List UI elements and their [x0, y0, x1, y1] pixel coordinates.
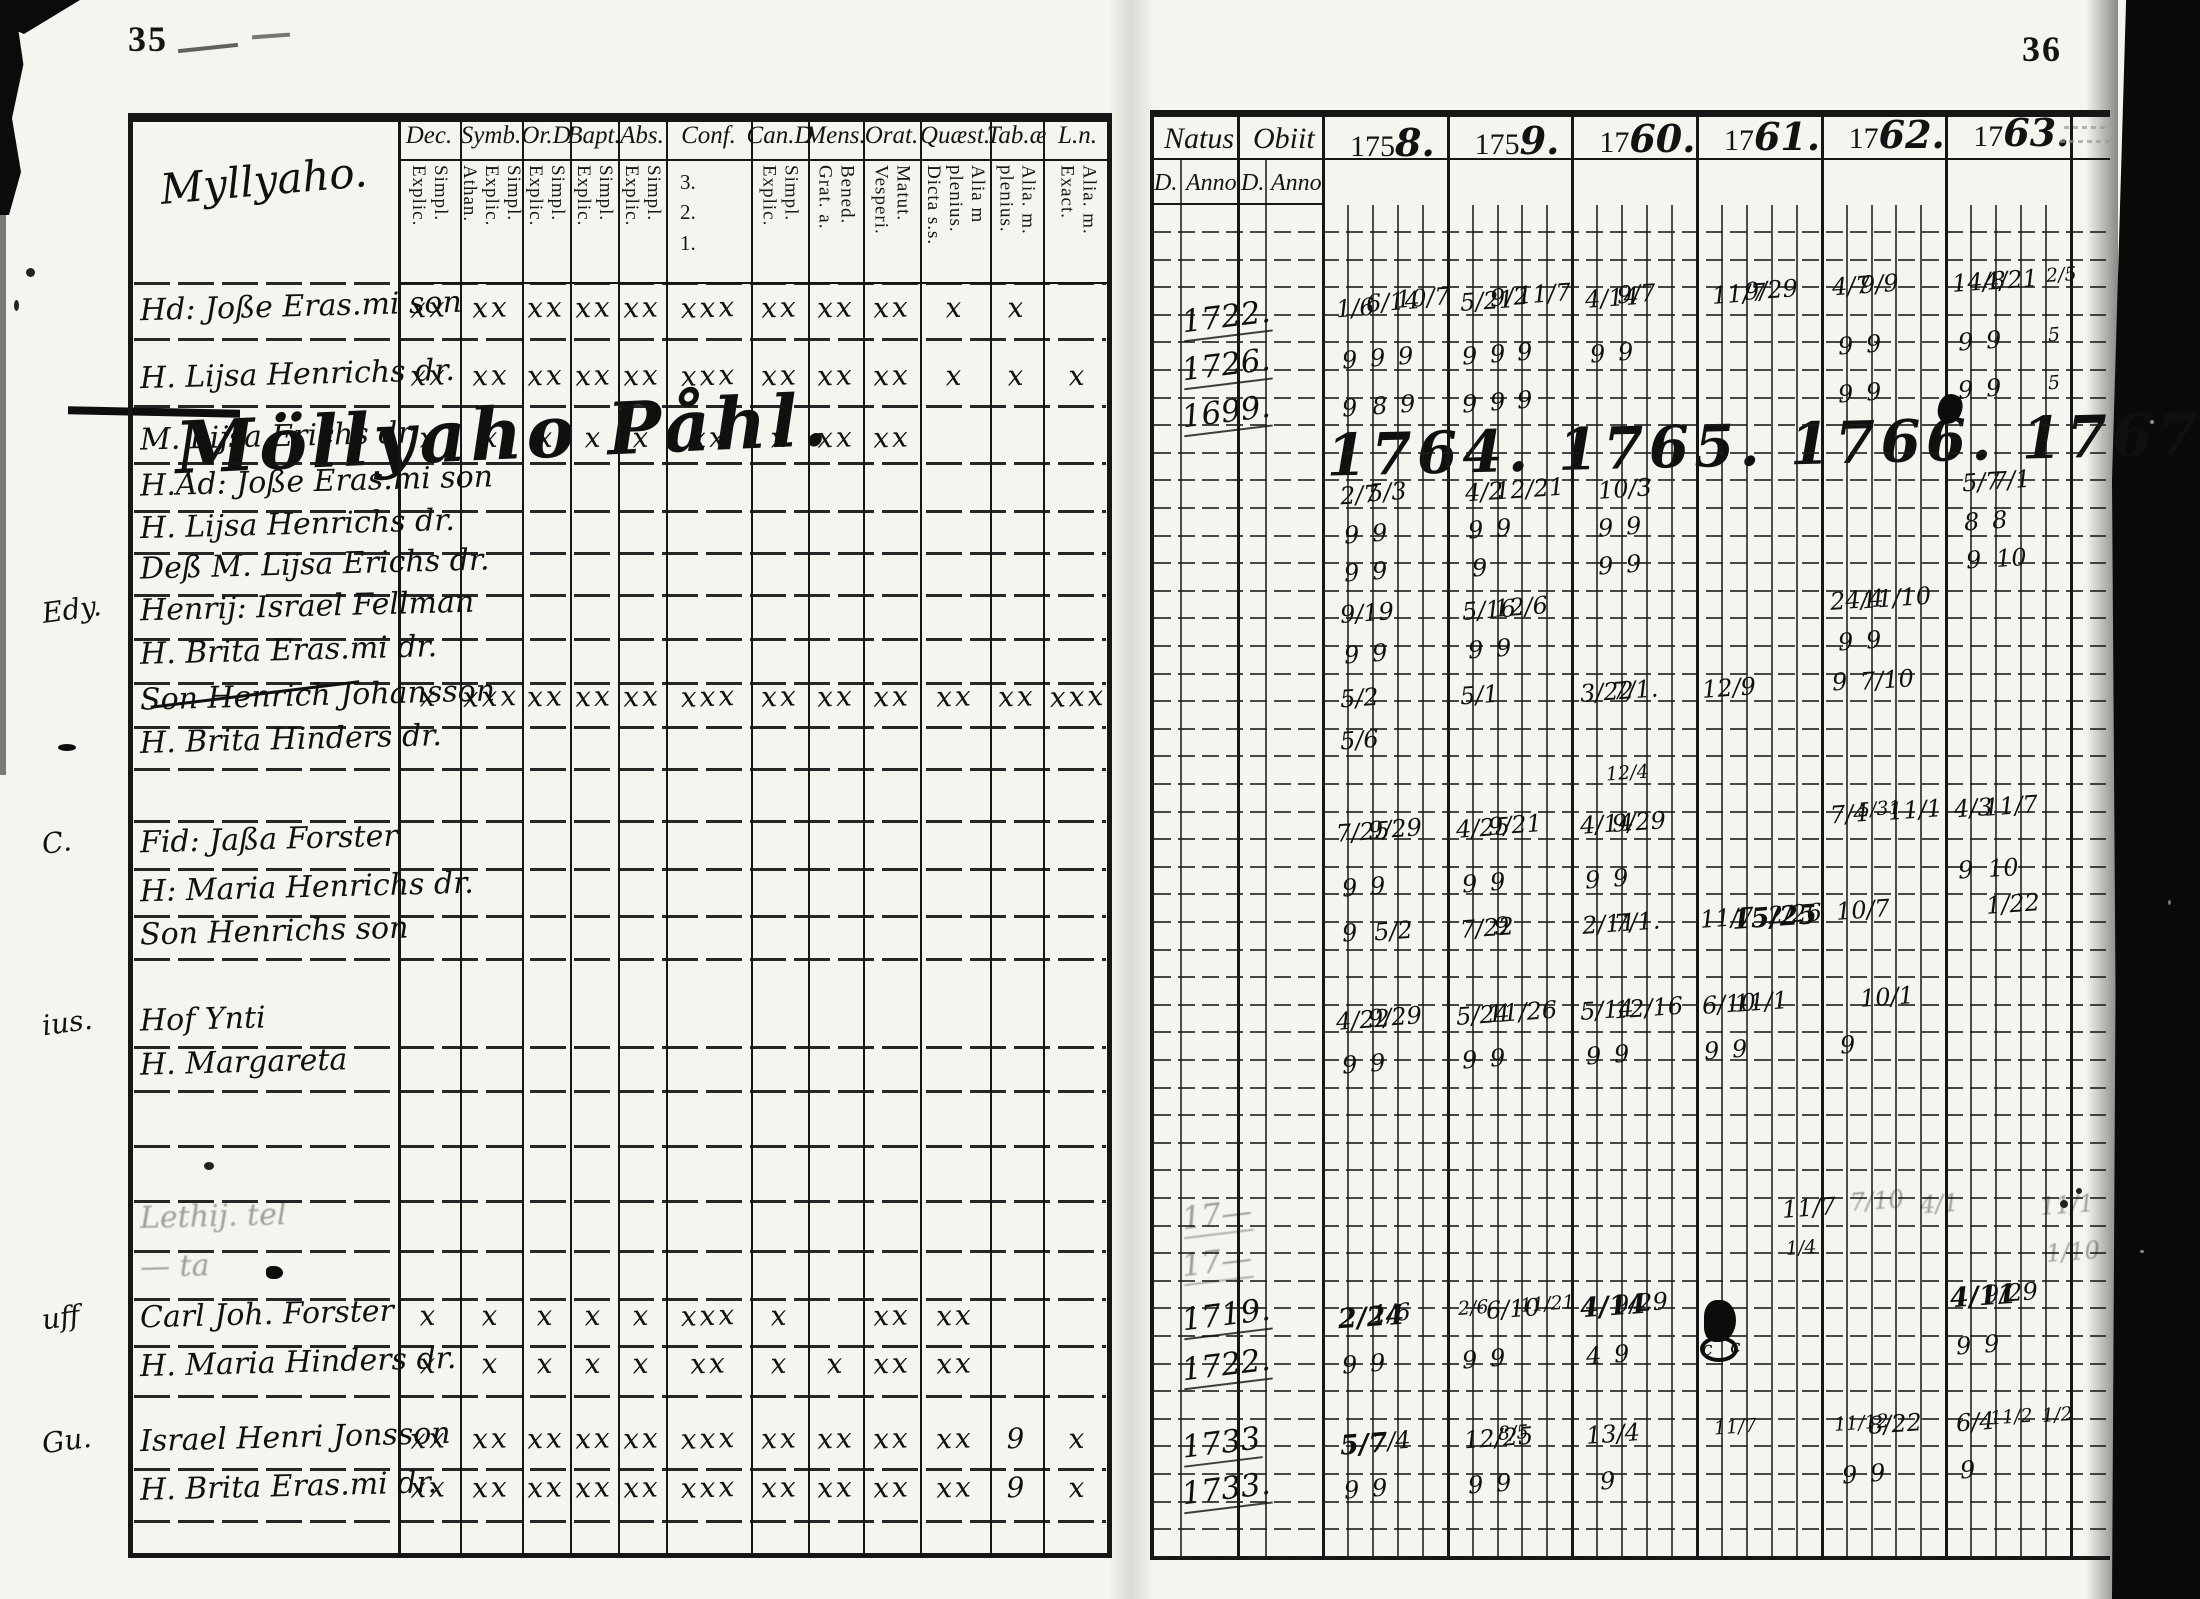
column-sub-label: Explic.: [525, 165, 545, 284]
year-printed-digits: 17: [1599, 126, 1629, 159]
cell-entry: 9: [1957, 329, 1974, 354]
row-line: [1154, 838, 2106, 840]
mark-cell: xx: [689, 423, 728, 452]
mark-cell: x: [770, 424, 790, 453]
cell-entry: 9: [1343, 642, 1360, 667]
column-sub-label: plenius.: [945, 165, 965, 284]
year-script-digits: 62.: [1879, 112, 1945, 157]
column-sub-labels: Explic.Simpl.: [398, 161, 460, 284]
cell-entry: 9/21: [1487, 811, 1542, 839]
cell-entry: 9: [1343, 560, 1360, 585]
mark-cell: xx: [816, 293, 855, 322]
cell-entry: 9: [1613, 1341, 1630, 1366]
cell-entry: 5/3: [1367, 479, 1407, 506]
name-column-divider: [398, 113, 401, 1557]
cell-entry: 11/1: [1733, 988, 1788, 1016]
subcolumn-line: [1871, 205, 1873, 1556]
register-row-name: Deß M. Lijsa Erichs dr.: [140, 545, 490, 584]
row-line: [1154, 369, 2106, 371]
column-sub-label: Simpl.: [547, 165, 567, 284]
mark-cell: xx: [872, 1473, 911, 1502]
natus-d-label: D.: [1154, 170, 1177, 197]
scanned-register-spread: 35 36 Myllyaho. Möllyaho Påhl. Dec.Expli…: [0, 0, 2200, 1599]
cell-entry: 9: [1369, 1350, 1386, 1375]
grid-vline: [522, 113, 524, 1557]
natus-anno-entry: 17—: [1180, 1196, 1254, 1239]
column-sub-label: plenius.: [996, 165, 1016, 284]
mark-cell: xx: [527, 361, 566, 390]
mark-cell: x: [419, 1302, 439, 1331]
faint-header-scribble: [2064, 126, 2108, 129]
year-script-digits: 60.: [1629, 116, 1695, 161]
cell-entry: 8: [1371, 393, 1388, 418]
cell-entry: 9: [1841, 1462, 1858, 1487]
column-header-qust: Quæst.Dicta s.s.plenius.Alia m: [920, 113, 990, 284]
grid-vline: [863, 113, 865, 1557]
cell-entry: 5: [2047, 326, 2060, 346]
cell-entry: 9: [1837, 333, 1854, 358]
left-table-header: Dec.Explic.Simpl.Symb.Athan.Explic.Simpl…: [128, 113, 1112, 284]
mark-cell: xxx: [680, 293, 737, 323]
cell-entry: 9/29: [1611, 808, 1666, 836]
mark-cell: xx: [760, 1424, 799, 1453]
mark-cell: xx: [410, 1424, 449, 1453]
cell-entry: 9: [1837, 629, 1854, 654]
cell-entry: 9/7: [1616, 281, 1656, 308]
danno-underline: [1150, 203, 1322, 205]
mark-cell: xx: [760, 361, 799, 390]
cell-entry: 9/19: [1339, 599, 1394, 627]
cell-entry: 2/26: [1767, 900, 1822, 928]
mark-cell: xx: [410, 293, 449, 322]
grid-vline: [460, 113, 462, 1557]
register-row-name: Carl Joh. Forster: [140, 1297, 395, 1334]
cell-entry: 9: [1461, 1347, 1478, 1372]
cell-entry: 9: [1731, 1036, 1748, 1061]
cell-entry: 13/4: [1585, 1420, 1640, 1448]
cell-entry: 8: [1963, 509, 1980, 534]
cell-entry: 7/1: [1991, 467, 2031, 494]
cell-entry: 11/7: [1781, 1194, 1836, 1222]
mark-cell: xx: [872, 423, 911, 452]
mark-cell: xx: [689, 1349, 728, 1378]
mark-cell: xx: [527, 293, 566, 322]
mark-cell: xx: [760, 293, 799, 322]
rule-line: [134, 1145, 1106, 1148]
cell-entry: 10/7: [1835, 896, 1890, 924]
cell-entry: 1/22: [1985, 890, 2040, 918]
column-sub-label: Exact.: [1057, 165, 1077, 284]
grid-vline: [808, 113, 810, 1557]
column-header-tab: Tab.æplenius.Alia. m.: [990, 113, 1043, 284]
row-line: [1154, 949, 2106, 951]
script-years-row: 1764. 1765. 1766. 1767. 1768. 1769.: [1325, 393, 2200, 484]
column-sub-label: Alia m: [967, 165, 987, 284]
column-sub-label: Simpl.: [503, 165, 523, 284]
mark-cell: xx: [760, 682, 799, 711]
cell-entry: 10: [1995, 545, 2027, 571]
cell-entry: 9: [1625, 513, 1642, 538]
register-row-name: H. Brita Hinders dr.: [140, 721, 442, 759]
row-line: [1154, 231, 2106, 233]
cell-entry: 9: [1489, 1045, 1506, 1070]
register-row-name: H.Ad: Joße Eras.mi son: [140, 462, 494, 501]
grid-vline: [751, 113, 753, 1557]
cell-entry: 1/4: [1785, 1238, 1817, 1259]
mark-cell: xx: [760, 1473, 799, 1502]
obiit-d-label: D.: [1241, 170, 1264, 197]
mark-cell: xx: [410, 361, 449, 390]
mark-cell: x: [632, 1350, 652, 1379]
cell-entry: 9: [1516, 387, 1533, 412]
cell-entry: 4: [1585, 1343, 1602, 1368]
cell-entry: 9: [1461, 391, 1478, 416]
cell-entry: 7/1.: [1613, 908, 1661, 935]
column-header-label: Bapt.: [570, 113, 618, 161]
year-divider: [1945, 110, 1948, 1556]
cell-entry: 9: [1589, 341, 1606, 366]
mark-cell: x: [584, 424, 604, 453]
row-line: [1154, 1142, 2106, 1144]
mark-cell: xx: [997, 682, 1036, 711]
column-header-label: Or.D: [522, 113, 570, 161]
margin-note: Gu.: [40, 1424, 93, 1459]
cell-entry: 12/9: [1701, 674, 1756, 702]
column-sub-labels: Explic.Simpl.: [570, 161, 618, 284]
subcolumn-line: [1920, 205, 1922, 1556]
cell-entry: 9: [1341, 1352, 1358, 1377]
column-sub-label: Simpl.: [643, 165, 663, 284]
register-row-name: H: Maria Henrichs dr.: [140, 869, 474, 908]
cell-entry: 9: [1371, 1475, 1388, 1500]
cell-entry: 9: [1397, 343, 1414, 368]
year-divider: [1447, 110, 1450, 1556]
cell-entry: 9: [1489, 341, 1506, 366]
mark-cell: xx: [872, 361, 911, 390]
grid-vline: [666, 113, 668, 1557]
column-header-bapt: Bapt.Explic.Simpl.: [570, 113, 618, 284]
cell-entry: 5/2: [1339, 685, 1379, 712]
cell-entry: 9: [1467, 1472, 1484, 1497]
ink-speck: [204, 1162, 214, 1170]
mark-cell: xx: [472, 1424, 511, 1453]
column-sub-labels: Exact.Alia. m.: [1043, 161, 1112, 284]
cell-entry: 11/7: [1516, 280, 1571, 308]
year-divider: [1696, 110, 1699, 1556]
year-header-1758: 1758.: [1350, 120, 1435, 165]
rule-line: [134, 1395, 1106, 1398]
table-border-left: [1150, 110, 1154, 1556]
subcolumn-line: [1397, 205, 1399, 1556]
cell-entry: 9: [1831, 669, 1848, 694]
grid-vline: [920, 113, 922, 1557]
column-header-orat: Orat.Vesperi.Matut.: [863, 113, 920, 284]
row-line: [1154, 1059, 2106, 1061]
cell-entry: 9: [1461, 343, 1478, 368]
margin-note: uff: [40, 1302, 81, 1335]
cell-entry: 4/21: [1983, 266, 2038, 294]
cell-entry: 9: [1865, 379, 1882, 404]
mark-cell: xx: [472, 293, 511, 322]
column-sub-labels: Athan.Explic.Simpl.: [460, 161, 522, 284]
mark-cell: xx: [816, 423, 855, 452]
cell-entry: 2/5: [2045, 265, 2077, 286]
cell-entry: 9: [1461, 871, 1478, 896]
column-header-ord: Or.DExplic.Simpl.: [522, 113, 570, 284]
mark-cell: 9: [1006, 1474, 1028, 1503]
column-header-label: Can.D: [751, 113, 808, 161]
cell-entry: 9: [1371, 520, 1388, 545]
cell-entry: 8: [1991, 507, 2008, 532]
row-line: [1154, 728, 2106, 730]
column-header-label: Mens.: [808, 113, 863, 161]
ink-blot: [266, 1266, 283, 1279]
mark-cell: xx: [623, 682, 662, 711]
cell-entry: 9: [1703, 1038, 1720, 1063]
mark-cell: xx: [816, 361, 855, 390]
cell-entry: 9: [1371, 558, 1388, 583]
year-divider: [1821, 110, 1824, 1556]
mark-cell: x: [536, 1350, 556, 1379]
cell-entry: 9: [1625, 551, 1642, 576]
natus-anno-entry: 1733.: [1180, 1469, 1272, 1515]
year-printed-digits: 17: [1724, 124, 1754, 157]
mark-cell: xx: [872, 1424, 911, 1453]
year-header-1763: 1763.: [1973, 110, 2069, 155]
row-line: [1154, 1169, 2106, 1171]
mark-cell: x: [584, 1302, 604, 1331]
column-sub-labels: 3.2.1.: [666, 161, 751, 258]
cell-entry: 11/2: [1989, 1407, 2033, 1429]
register-row-name: H. Margareta: [140, 1045, 348, 1080]
cell-entry: 9: [1965, 547, 1982, 572]
natus-anno-entry: 1699.: [1180, 392, 1272, 438]
cell-entry: 9/9: [1859, 271, 1899, 298]
cell-entry: 12/21: [1494, 475, 1565, 504]
mark-cell: xx: [936, 1301, 975, 1330]
cell-entry: 11/7: [1983, 792, 2038, 820]
register-row-name: Lethij. tel: [140, 1200, 287, 1234]
mark-cell: xx: [872, 682, 911, 711]
column-sub-label: Bened.: [837, 165, 857, 284]
mark-cell: xx: [575, 682, 614, 711]
year-header-1761: 1761.: [1724, 114, 1820, 159]
mark-cell: xxx: [680, 1301, 737, 1331]
mark-cell: xx: [816, 1473, 855, 1502]
cell-entry: 9: [1983, 1331, 2000, 1356]
year-printed-digits: 175: [1475, 128, 1520, 161]
mark-cell: x: [481, 1350, 501, 1379]
register-row-name: — ta: [140, 1251, 210, 1283]
mark-cell: x: [584, 1350, 604, 1379]
cell-entry: 11/26: [1487, 998, 1558, 1027]
cell-entry: 9: [1489, 1345, 1506, 1370]
cell-entry: 9: [1516, 339, 1533, 364]
cell-entry: 9: [1613, 1041, 1630, 1066]
cell-entry: 9: [1585, 1043, 1602, 1068]
mark-cell: xx: [575, 1424, 614, 1453]
subcolumn-line: [1796, 205, 1798, 1556]
natus-anno-label: Anno: [1186, 170, 1237, 197]
column-sub-label: Athan.: [459, 165, 479, 284]
column-sub-label: Explic.: [759, 165, 779, 284]
faint-header-scribble: [2060, 140, 2112, 143]
cell-entry: 8/5: [1497, 1423, 1529, 1444]
binding-speck: [2168, 900, 2171, 905]
cell-entry: 9: [1495, 635, 1512, 660]
year-printed-digits: 175: [1350, 130, 1395, 163]
row-line: [1154, 755, 2106, 757]
mark-cell: x: [770, 1350, 790, 1379]
subcolumn-line: [1546, 205, 1548, 1556]
cell-entry: 9: [1489, 389, 1506, 414]
mark-cell: x: [770, 1302, 790, 1331]
rule-line: [134, 338, 1106, 341]
cell-entry: 9: [1597, 515, 1614, 540]
ink-speck: [26, 268, 35, 277]
year-printed-digits: 17: [1849, 122, 1879, 155]
mark-cell: xx: [872, 1349, 911, 1378]
mark-cell: xx: [623, 361, 662, 390]
section-divider: [1322, 110, 1325, 1556]
cell-entry: 9: [1865, 627, 1882, 652]
natus-anno-entry: 1719.: [1180, 1295, 1272, 1341]
column-sub-label: Vesperi.: [871, 165, 891, 284]
row-line: [1154, 645, 2106, 647]
column-header-label: Quæst.: [920, 113, 990, 161]
cell-entry: 9: [1341, 920, 1358, 945]
cell-entry: 10/1: [1859, 983, 1914, 1011]
mark-cell: xx: [623, 1424, 662, 1453]
year-printed-digits: 17: [1973, 120, 2003, 153]
mark-cell: xxx: [462, 682, 519, 712]
cell-entry: 9: [1371, 640, 1388, 665]
mark-cell: xxx: [680, 1424, 737, 1454]
mark-cell: x: [1068, 362, 1088, 391]
cell-entry: 10/7: [1395, 284, 1450, 312]
natus-header-label: Natus: [1164, 122, 1234, 156]
mark-cell: xx: [527, 682, 566, 711]
mark-cell: xx: [575, 361, 614, 390]
register-row-name: H. Lijsa Henrichs dr.: [140, 506, 456, 544]
cell-entry: 9: [1959, 1457, 1976, 1482]
mark-cell: x: [945, 294, 965, 323]
mark-cell: xx: [527, 1473, 566, 1502]
cell-entry: 5/2: [1373, 918, 1413, 945]
column-header-label: Dec.: [398, 113, 460, 161]
cell-entry: 11/1: [1887, 796, 1942, 824]
column-sub-labels: Vesperi.Matut.: [863, 161, 920, 284]
table-border-left: [128, 113, 133, 1557]
column-sub-labels: Explic.Simpl.: [618, 161, 666, 284]
mark-cell: xx: [472, 361, 511, 390]
column-sub-label: Simpl.: [781, 165, 801, 284]
mark-cell: xx: [872, 1301, 911, 1330]
ink-speck: [2060, 1200, 2068, 1208]
mark-cell: xx: [472, 1473, 511, 1502]
register-row-name: Fid: Jaßa Forster: [140, 822, 398, 859]
natus-anno-entry: 1726.: [1180, 345, 1272, 391]
row-line: [1154, 617, 2106, 619]
row-line: [1154, 1252, 2106, 1254]
column-header-symb: Symb.Athan.Explic.Simpl.: [460, 113, 522, 284]
cell-entry: 9: [1461, 1047, 1478, 1072]
cell-entry: 9: [1489, 869, 1506, 894]
name-column-header-cell: [128, 113, 398, 282]
register-row-name: Son Henrich Johansson: [140, 676, 496, 715]
column-sub-labels: Dicta s.s.plenius.Alia m: [920, 161, 990, 284]
cell-entry: 5/1: [1459, 682, 1499, 709]
column-header-label: L.n.: [1043, 113, 1112, 161]
mark-cell: x: [419, 1350, 439, 1379]
row-line: [1154, 1031, 2106, 1033]
year-header-1762: 1762.: [1849, 112, 1945, 157]
row-line: [1154, 893, 2106, 895]
cell-entry: 11/10: [1861, 584, 1932, 613]
cell-entry: 9/29: [1613, 1289, 1668, 1317]
cell-entry: 9: [1467, 517, 1484, 542]
column-sub-label: 1.: [680, 228, 751, 258]
year-header-1759: 1759.: [1475, 118, 1560, 163]
mark-cell: xx: [575, 1473, 614, 1502]
cell-entry: 9: [1343, 522, 1360, 547]
cell-entry: 1/6: [1371, 1300, 1411, 1327]
mark-cell: x: [1068, 1474, 1088, 1503]
register-row-name: Henrij: Israel Fellman: [140, 588, 475, 627]
row-line: [1154, 976, 2106, 978]
year-script-digits: 63.: [2003, 110, 2069, 155]
column-sub-label: Explic.: [621, 165, 641, 284]
register-row-name: Son Henrichs son: [140, 913, 409, 950]
cell-entry: 9: [1341, 875, 1358, 900]
register-row-name: M. Lijsa Erichs dr.: [140, 418, 419, 455]
cell-entry: 9: [1985, 375, 2002, 400]
ink-speck: [14, 300, 19, 311]
cell-entry: 7/10: [1849, 1187, 1904, 1215]
mark-cell: x: [1007, 362, 1027, 391]
mark-cell: xxx: [1049, 682, 1106, 712]
cell-entry: 7/4: [1371, 1428, 1411, 1455]
cell-entry: 10: [1987, 855, 2019, 881]
cell-entry: 12/16: [1613, 994, 1684, 1023]
subcolumn-line: [2020, 205, 2022, 1556]
column-header-label: Abs.: [618, 113, 666, 161]
column-header-label: Symb.: [460, 113, 522, 161]
cell-entry: 9: [1341, 1052, 1358, 1077]
cell-entry: 9: [1837, 381, 1854, 406]
rule-line: [134, 1520, 1106, 1523]
column-sub-label: Grat. a.: [815, 165, 835, 284]
column-sub-labels: plenius.Alia. m.: [990, 161, 1043, 284]
grid-vline: [1043, 113, 1045, 1557]
row-line: [1154, 1390, 2106, 1392]
natus-anno-entry: 1722.: [1180, 1345, 1272, 1391]
mark-cell: x: [419, 424, 439, 453]
right-page: 1764. 1765. 1766. 1767. 1768. 1769. Natu…: [1112, 0, 2112, 1599]
column-header-cand: Can.DExplic.Simpl.: [751, 113, 808, 284]
cell-entry: 9: [1495, 515, 1512, 540]
column-header-abs: Abs.Explic.Simpl.: [618, 113, 666, 284]
cell-entry: 9: [1839, 1032, 1856, 1057]
mark-cell: xx: [816, 1424, 855, 1453]
cell-entry: 1/10: [2045, 1238, 2100, 1266]
cell-entry: 9: [1599, 1468, 1616, 1493]
margin-note: C.: [40, 827, 73, 859]
rule-line: [134, 405, 1106, 408]
cell-entry: 9: [1869, 1460, 1886, 1485]
cell-entry: 9: [1865, 331, 1882, 356]
cell-entry: 5/6: [1339, 727, 1379, 754]
